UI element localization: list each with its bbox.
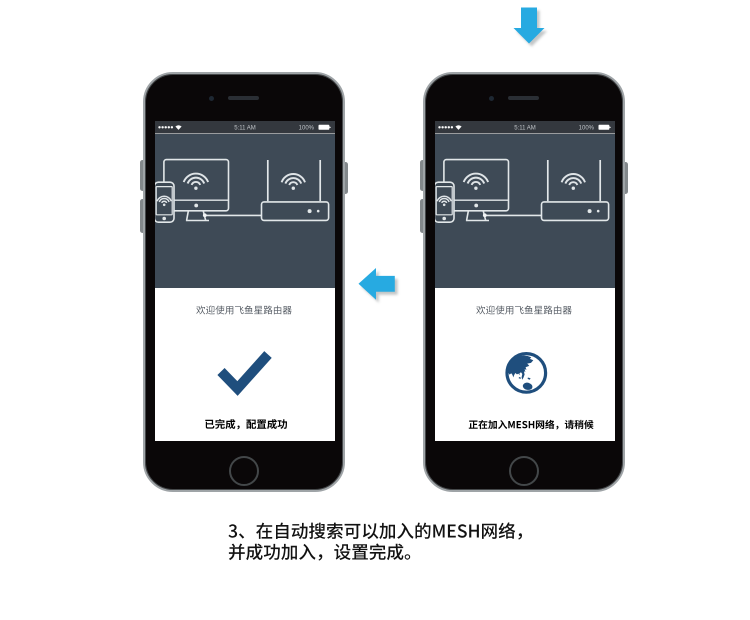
svg-text:100%: 100% xyxy=(299,126,315,132)
svg-text:5:11 AM: 5:11 AM xyxy=(234,126,256,132)
svg-text:100%: 100% xyxy=(579,126,595,132)
svg-text:5:11 AM: 5:11 AM xyxy=(514,126,536,132)
